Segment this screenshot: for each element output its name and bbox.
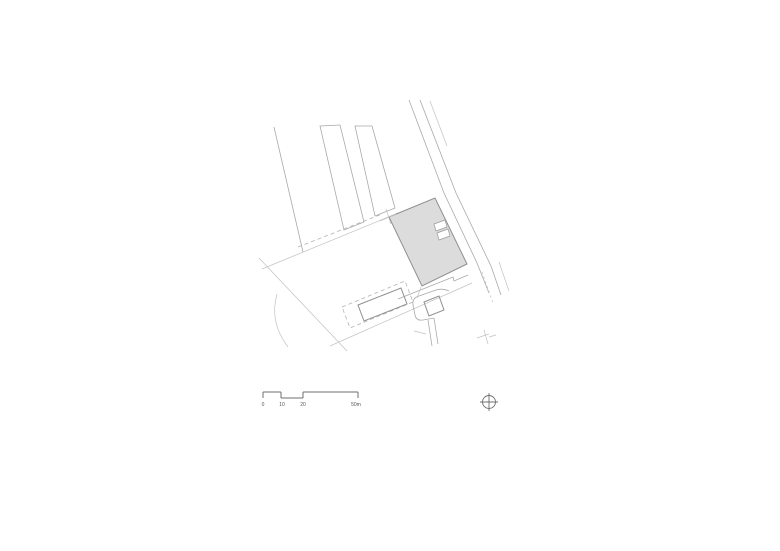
- main-building-group: [380, 198, 467, 286]
- context-buildings-north-block: [274, 125, 395, 252]
- scale-bar: 0 10 20 50m: [262, 392, 361, 408]
- parcel-boundary-south: [330, 283, 472, 346]
- scale-label-10: 10: [279, 402, 285, 408]
- garden-curve-line: [275, 294, 288, 347]
- annex-building-outline: [358, 288, 407, 321]
- parcel-boundary-north: [262, 213, 398, 269]
- site-furniture-mark-1: [477, 334, 489, 338]
- site-plan-canvas: 0 10 20 50m: [0, 0, 780, 551]
- dashed-extension-outline: [342, 281, 413, 328]
- north-crosshair-icon: [480, 393, 498, 411]
- parcel-boundary-north-dashed: [298, 214, 382, 247]
- site-plan-drawing: 0 10 20 50m: [0, 0, 780, 551]
- main-building-footprint: [389, 198, 467, 286]
- kerb-mark: [414, 331, 426, 334]
- road-marking-north: [430, 101, 447, 146]
- scale-label-50m: 50m: [351, 402, 361, 408]
- context-building-outline-2: [320, 125, 364, 230]
- site-furniture-mark-2: [484, 330, 488, 344]
- parcel-boundary-west: [259, 258, 347, 351]
- context-building-outline-3: [355, 126, 395, 216]
- small-structure-outline: [424, 296, 444, 316]
- road-dotted-line: [482, 272, 493, 303]
- driveway-line-1: [428, 320, 432, 346]
- scale-label-20: 20: [300, 402, 306, 408]
- site-furniture-mark-3: [489, 335, 496, 337]
- road-marking-south: [499, 262, 509, 291]
- driveway-line-2: [434, 318, 438, 344]
- scale-label-0: 0: [262, 402, 265, 408]
- context-building-line-1: [274, 127, 303, 252]
- scale-bar-profile: [263, 392, 358, 398]
